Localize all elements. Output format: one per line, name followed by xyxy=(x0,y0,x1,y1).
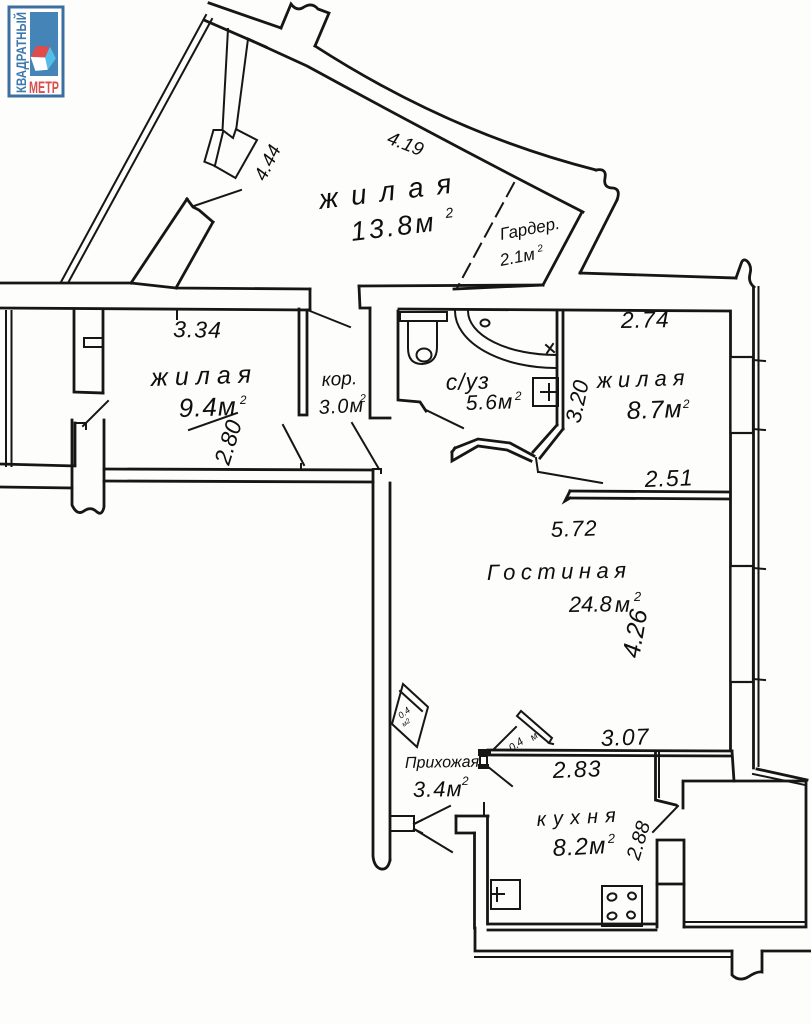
svg-text:3.07: 3.07 xyxy=(600,723,650,751)
svg-text:3.0м: 3.0м xyxy=(318,395,365,419)
svg-text:2: 2 xyxy=(359,393,367,405)
svg-text:кор.: кор. xyxy=(321,368,357,391)
svg-text:24.8: 24.8 xyxy=(568,591,613,617)
svg-text:2: 2 xyxy=(461,774,469,788)
svg-text:жилая: жилая xyxy=(595,365,691,393)
svg-text:МЕТР: МЕТР xyxy=(29,78,59,97)
svg-text:2.74: 2.74 xyxy=(620,306,670,333)
svg-text:жилая: жилая xyxy=(149,360,258,392)
svg-text:3.34: 3.34 xyxy=(173,316,222,343)
svg-text:2: 2 xyxy=(633,589,642,604)
svg-text:3.4м: 3.4м xyxy=(413,776,463,802)
svg-text:2.51: 2.51 xyxy=(643,464,694,492)
svg-text:2: 2 xyxy=(239,393,247,407)
svg-text:2: 2 xyxy=(682,397,690,411)
svg-text:9.4м: 9.4м xyxy=(178,391,237,423)
svg-text:2.83: 2.83 xyxy=(551,755,602,783)
svg-text:5.72: 5.72 xyxy=(550,515,598,542)
svg-text:8.7м: 8.7м xyxy=(626,395,683,425)
svg-text:кухня: кухня xyxy=(536,805,623,831)
svg-text:5.6м: 5.6м xyxy=(465,390,513,415)
svg-text:2: 2 xyxy=(606,831,616,846)
svg-text:Прихожая: Прихожая xyxy=(405,754,480,772)
svg-text:КВАДРАТНЫЙ: КВАДРАТНЫЙ xyxy=(14,12,29,93)
svg-text:8.2м: 8.2м xyxy=(552,832,607,862)
svg-text:2: 2 xyxy=(514,389,522,403)
svg-text:Гостиная: Гостиная xyxy=(487,557,632,585)
